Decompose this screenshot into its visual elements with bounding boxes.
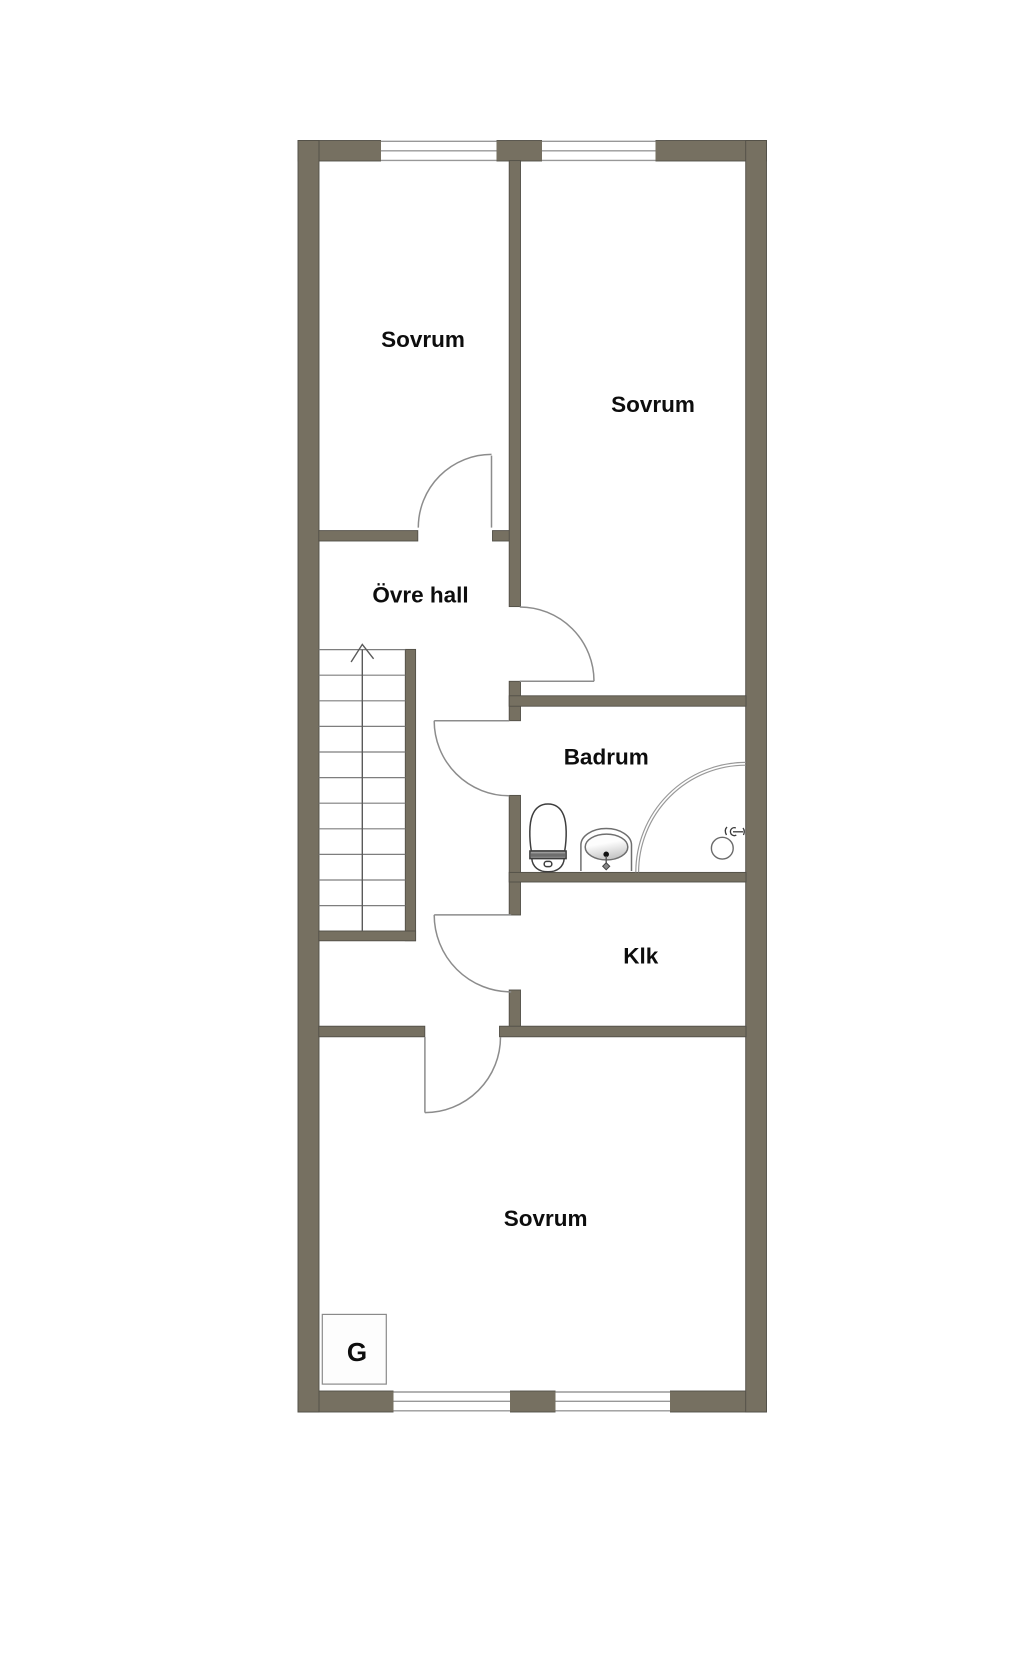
svg-text:Sovrum: Sovrum <box>611 392 695 417</box>
svg-text:G: G <box>347 1337 367 1367</box>
svg-text:Sovrum: Sovrum <box>381 327 465 352</box>
svg-text:Badrum: Badrum <box>564 745 649 770</box>
svg-text:Klk: Klk <box>623 944 659 969</box>
svg-text:Övre hall: Övre hall <box>372 583 468 608</box>
svg-text:Sovrum: Sovrum <box>504 1206 588 1231</box>
